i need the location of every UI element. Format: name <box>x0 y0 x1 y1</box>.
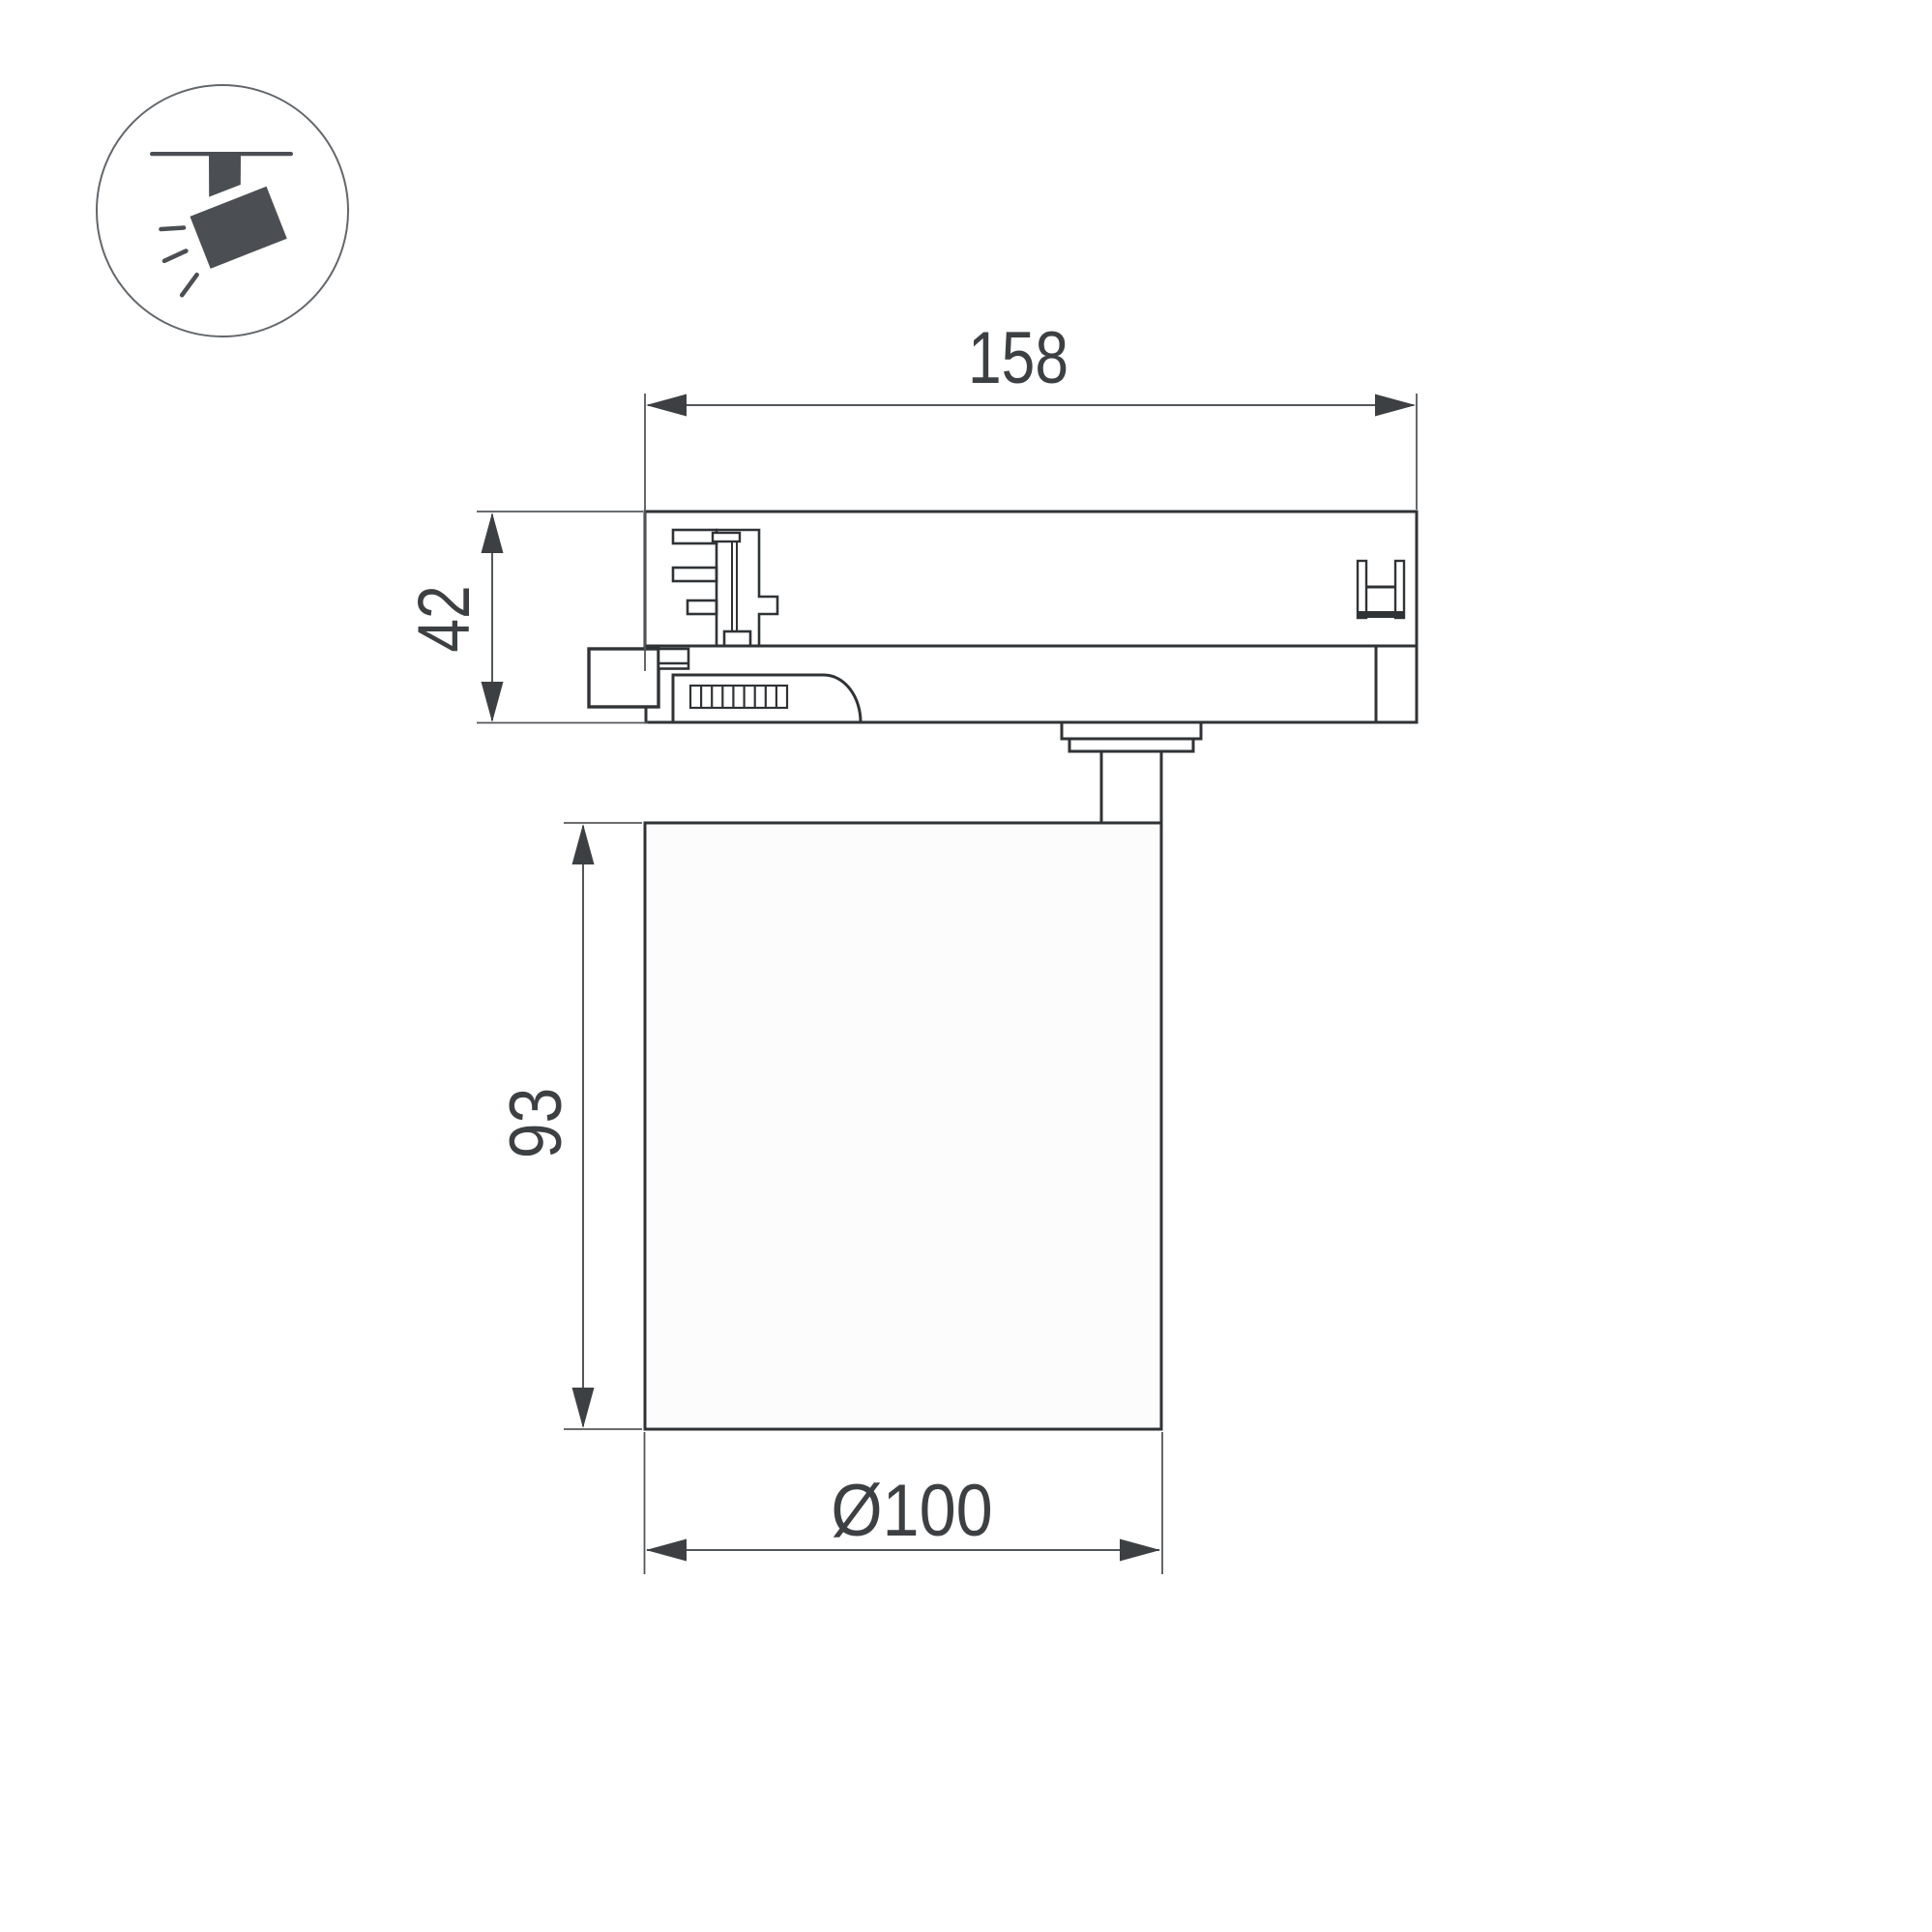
svg-text:93: 93 <box>496 1088 577 1159</box>
svg-text:Ø100: Ø100 <box>831 1471 992 1552</box>
svg-text:158: 158 <box>968 316 1068 398</box>
svg-text:42: 42 <box>402 585 484 652</box>
